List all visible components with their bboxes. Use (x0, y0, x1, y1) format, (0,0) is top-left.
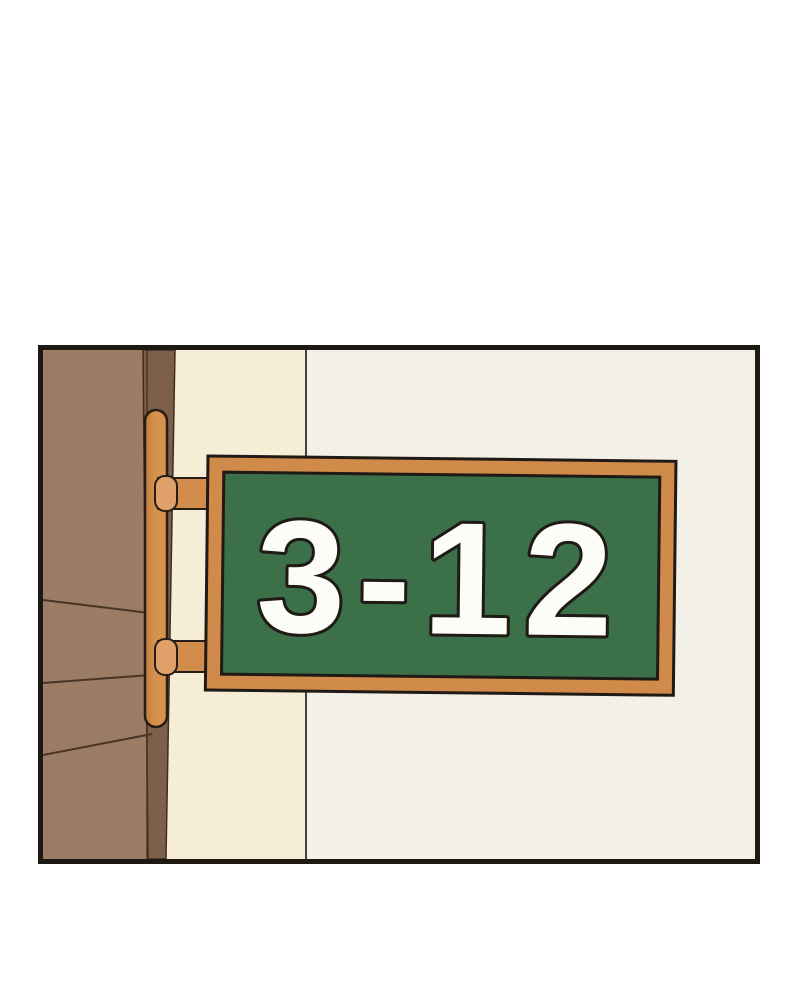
comic-panel: 3-12 (38, 345, 760, 864)
mount-arm-top-cap (155, 476, 177, 511)
wood-plank-wall (43, 350, 147, 859)
sign-text: 3-12 (256, 487, 626, 670)
panel-artwork: 3-12 (43, 350, 755, 859)
mount-arm-bottom-cap (155, 639, 177, 675)
comic-page: 3-12 (0, 0, 800, 1000)
sign-mount-bracket (145, 410, 167, 727)
classroom-sign: 3-12 (205, 456, 676, 695)
